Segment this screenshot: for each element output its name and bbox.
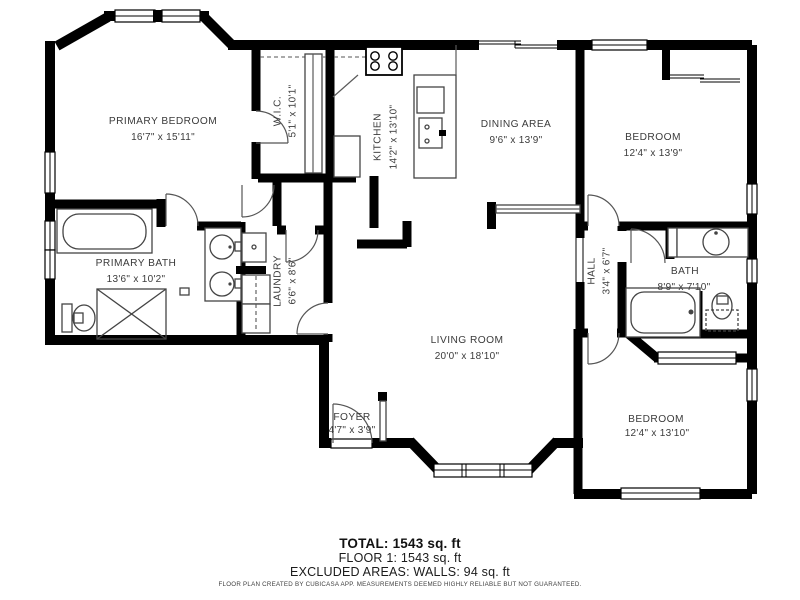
- label-foyer: FOYER: [333, 412, 370, 423]
- label-wic: W.I.C.: [273, 96, 284, 126]
- label-bedroom-top: BEDROOM: [625, 132, 681, 143]
- floor-plan-drawing: PRIMARY BEDROOM 16'7" x 15'11" W.I.C. 5'…: [0, 0, 800, 600]
- label-primary-bath: PRIMARY BATH: [96, 258, 177, 269]
- door-laundry-side: [297, 303, 328, 334]
- summary-block: TOTAL: 1543 sq. ft FLOOR 1: 1543 sq. ft …: [218, 536, 581, 588]
- label-kitchen: KITCHEN: [373, 113, 384, 161]
- stove-icon: [366, 47, 402, 75]
- windows: [45, 10, 757, 499]
- label-dining-area: DINING AREA: [481, 119, 552, 130]
- dims-dining-area: 9'6" x 13'9": [490, 135, 543, 146]
- dims-foyer: 4'7" x 3'9": [328, 425, 375, 436]
- label-hall: HALL: [587, 257, 598, 284]
- door-bedroom-top: [588, 195, 619, 226]
- excluded-area-text: EXCLUDED AREAS: WALLS: 94 sq. ft: [290, 565, 510, 579]
- dims-primary-bath: 13'6" x 10'2": [107, 274, 166, 285]
- front-door: [333, 404, 372, 443]
- room-labels: PRIMARY BEDROOM 16'7" x 15'11" W.I.C. 5'…: [96, 84, 711, 439]
- bathtub-icon: [631, 292, 695, 333]
- dims-bedroom-bottom: 12'4" x 13'10": [625, 428, 690, 439]
- refrigerator-icon: [334, 136, 360, 177]
- dims-kitchen: 14'2" x 13'10": [389, 105, 400, 170]
- label-living-room: LIVING ROOM: [431, 335, 504, 346]
- foyer-partition: [378, 392, 387, 441]
- wic-fixtures: [305, 54, 322, 173]
- door-wic-hall: [242, 185, 274, 217]
- front-door-threshold: [331, 439, 372, 448]
- vanity: [677, 228, 748, 257]
- bathtub-icon: [63, 214, 146, 249]
- dims-bedroom-top: 12'4" x 13'9": [624, 148, 683, 159]
- label-laundry: LAUNDRY: [273, 255, 284, 307]
- door-bath: [631, 229, 665, 263]
- double-vanity: [205, 228, 241, 301]
- label-bedroom-bottom: BEDROOM: [628, 414, 684, 425]
- kitchen-sink-icon: [419, 118, 442, 148]
- label-primary-bedroom: PRIMARY BEDROOM: [109, 116, 217, 127]
- dining-knee-wall: [487, 202, 580, 229]
- disclaimer-text: FLOOR PLAN CREATED BY CUBICASA APP. MEAS…: [218, 581, 581, 588]
- total-area-text: TOTAL: 1543 sq. ft: [339, 536, 461, 551]
- door-bedroom-bottom: [588, 333, 619, 364]
- dims-laundry: 6'6" x 8'6": [288, 257, 299, 304]
- door-laundry-top: [286, 230, 318, 262]
- bedroom-top-closet: [670, 75, 740, 82]
- dims-hall: 3'4" x 6'7": [602, 247, 613, 294]
- label-bath: BATH: [671, 266, 699, 277]
- dims-bath: 8'9" x 7'10": [658, 282, 711, 293]
- dims-primary-bedroom: 16'7" x 15'11": [131, 132, 195, 143]
- sidelight: [380, 401, 386, 441]
- dims-wic: 5'1" x 10'1": [288, 84, 299, 137]
- floor-area-text: FLOOR 1: 1543 sq. ft: [339, 551, 462, 565]
- toilet-icon: [62, 304, 72, 332]
- floor-plan-page: PRIMARY BEDROOM 16'7" x 15'11" W.I.C. 5'…: [0, 0, 800, 600]
- dims-living-room: 20'0" x 18'10": [435, 351, 500, 362]
- door-primary-bath: [166, 194, 198, 226]
- laundry-sink-icon: [242, 233, 266, 262]
